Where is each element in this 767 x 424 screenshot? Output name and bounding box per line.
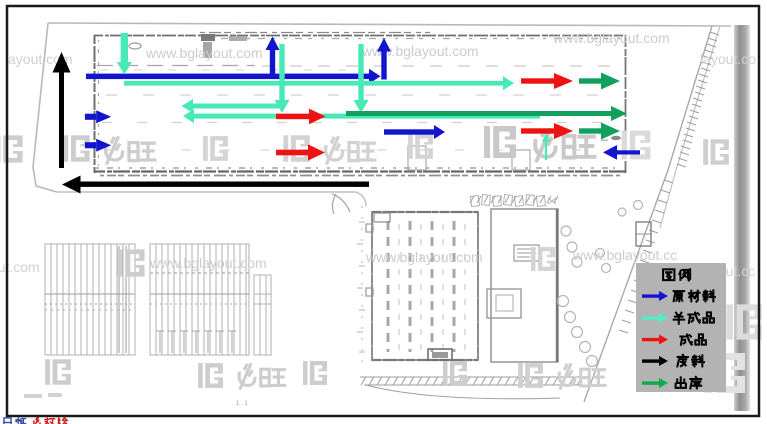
svg-text:1 : 1: 1 : 1 <box>236 401 248 407</box>
svg-text:www.bglayout.com: www.bglayout.com <box>365 249 483 265</box>
svg-text:www.bglayout.com: www.bglayout.com <box>145 45 263 61</box>
svg-text:www.bglayout.com: www.bglayout.com <box>149 255 267 271</box>
svg-text:www.bglayout.com: www.bglayout.com <box>552 30 670 46</box>
svg-text:www.bglayout.cc: www.bglayout.cc <box>572 247 677 263</box>
svg-text:layout.co: layout.co <box>700 51 756 67</box>
